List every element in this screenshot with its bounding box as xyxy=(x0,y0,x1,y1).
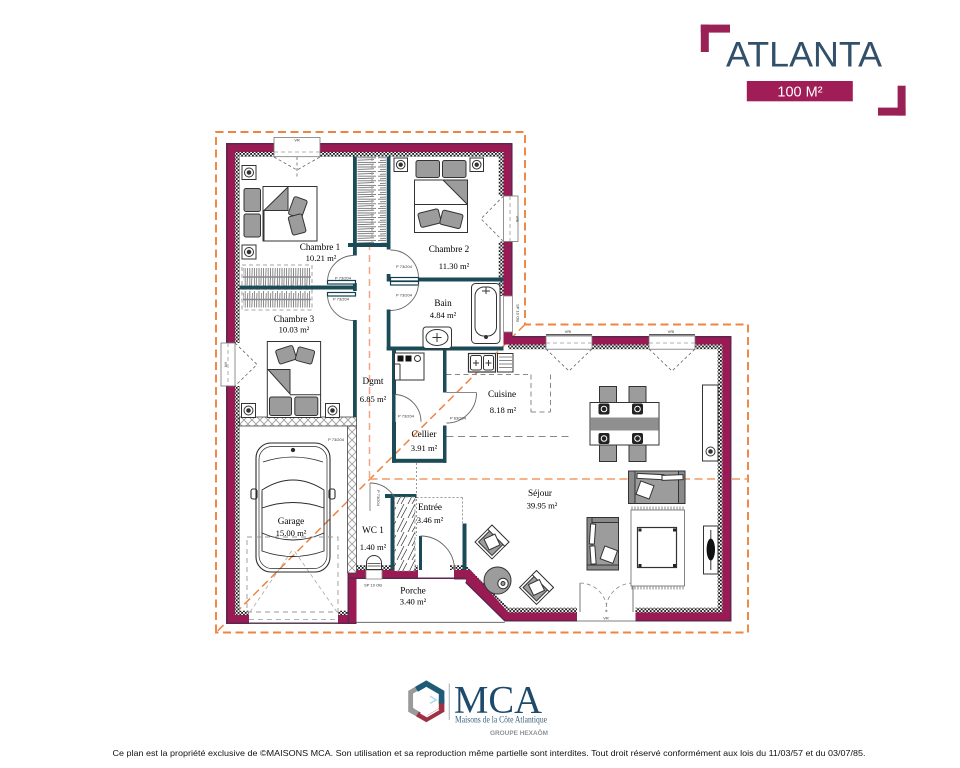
svg-text:P 73/204: P 73/204 xyxy=(333,297,350,302)
svg-text:P 63/204: P 63/204 xyxy=(450,416,467,421)
svg-text:VRI: VRI xyxy=(668,329,675,334)
svg-text:P 73/204: P 73/204 xyxy=(398,414,415,419)
svg-text:Chambre 3: Chambre 3 xyxy=(274,314,315,324)
svg-text:P 73/204: P 73/204 xyxy=(376,490,381,507)
svg-text:VR: VR xyxy=(603,616,609,621)
svg-text:Chambre 1: Chambre 1 xyxy=(300,242,341,252)
svg-text:Bain: Bain xyxy=(434,298,452,308)
svg-text:Chambre 2: Chambre 2 xyxy=(429,244,470,254)
svg-text:10.03 m²: 10.03 m² xyxy=(279,325,310,335)
svg-text:WC 1: WC 1 xyxy=(362,525,384,535)
svg-text:3.46 m²: 3.46 m² xyxy=(417,515,444,525)
svg-text:ATLANTA: ATLANTA xyxy=(726,35,882,75)
svg-text:1.40 m²: 1.40 m² xyxy=(360,542,387,552)
svg-text:VR: VR xyxy=(294,138,300,143)
svg-text:15.00 m²: 15.00 m² xyxy=(276,528,307,538)
svg-text:10.21 m²: 10.21 m² xyxy=(306,253,337,263)
svg-text:Garage: Garage xyxy=(278,516,305,526)
svg-text:Maisons de la Côte Atlantique: Maisons de la Côte Atlantique xyxy=(455,715,547,725)
svg-text:SP 10 OB: SP 10 OB xyxy=(516,304,521,322)
svg-text:4.84 m²: 4.84 m² xyxy=(430,310,457,320)
svg-text:VRI: VRI xyxy=(515,216,520,223)
svg-text:Ce plan est la propriété exclu: Ce plan est la propriété exclusive de ©M… xyxy=(113,748,866,758)
svg-text:8.18 m²: 8.18 m² xyxy=(490,405,517,415)
svg-text:Cellier: Cellier xyxy=(411,429,436,439)
svg-text:P 73/204: P 73/204 xyxy=(328,437,345,442)
svg-text:Cuisine: Cuisine xyxy=(488,389,516,399)
svg-text:P 73/204: P 73/204 xyxy=(396,264,413,269)
svg-text:100 M²: 100 M² xyxy=(777,84,822,100)
svg-text:3.40 m²: 3.40 m² xyxy=(400,597,427,607)
svg-text:Séjour: Séjour xyxy=(528,488,552,498)
svg-text:VR: VR xyxy=(224,362,229,368)
svg-text:39.95 m²: 39.95 m² xyxy=(527,501,558,511)
svg-text:SP 10 OB: SP 10 OB xyxy=(364,583,382,588)
svg-text:11.30 m²: 11.30 m² xyxy=(439,261,470,271)
svg-text:GROUPE HEXAŌM: GROUPE HEXAŌM xyxy=(490,729,548,737)
svg-text:Dgmt: Dgmt xyxy=(363,376,384,386)
svg-text:Entrée: Entrée xyxy=(418,502,442,512)
svg-text:Porche: Porche xyxy=(400,586,426,596)
svg-text:3.91 m²: 3.91 m² xyxy=(411,443,438,453)
svg-text:6.85 m²: 6.85 m² xyxy=(360,394,387,404)
svg-text:P 73/204: P 73/204 xyxy=(335,276,352,281)
svg-text:P 73/204: P 73/204 xyxy=(396,293,413,298)
svg-text:VRI: VRI xyxy=(565,329,572,334)
